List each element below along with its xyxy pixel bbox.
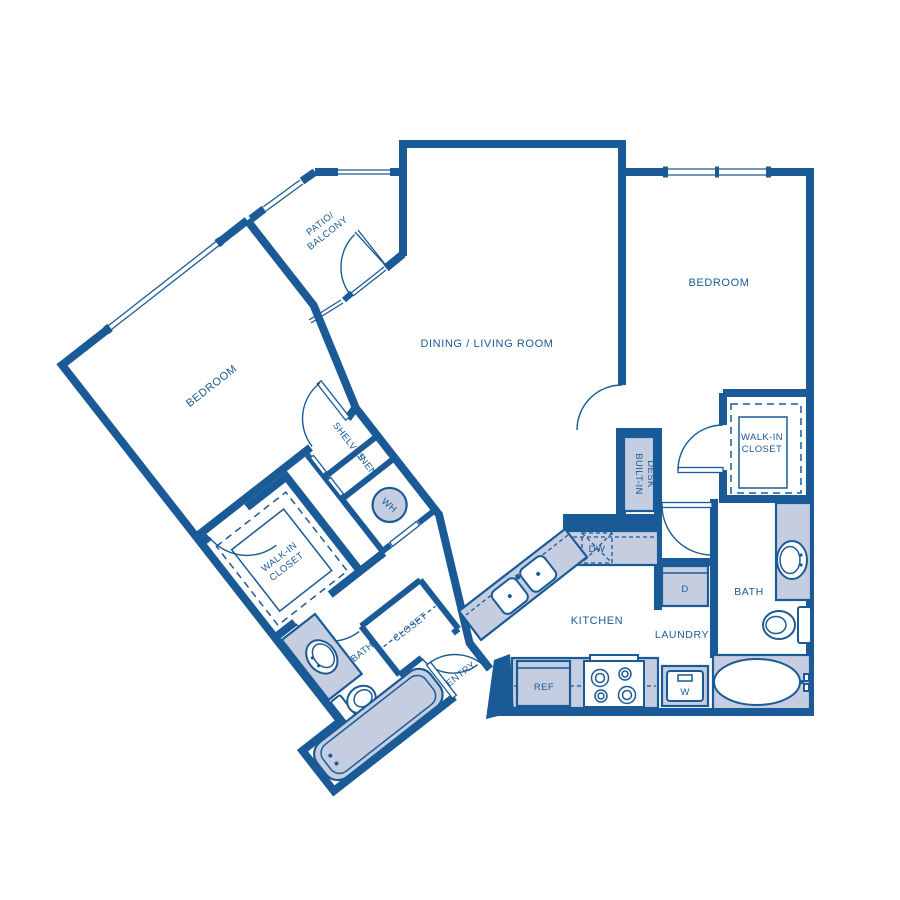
refrigerator-icon: REF	[517, 661, 570, 706]
kitchen-label: KITCHEN	[571, 615, 623, 627]
bathtub-right-icon	[713, 655, 810, 710]
walk-in-right-door	[678, 468, 723, 473]
closet-label: CLOSET	[391, 611, 430, 645]
left-wing: WALK-IN CLOSET SHELVES LINEN WH BATH	[21, 217, 556, 791]
patio-label: PATIO/ BALCONY	[298, 205, 350, 253]
bedroom-right-label: BEDROOM	[688, 277, 749, 289]
walk-in-right-label: WALK-IN	[741, 432, 783, 443]
bedroom-left-window	[103, 237, 224, 334]
wh-door	[390, 521, 420, 546]
washer-icon: W	[662, 666, 708, 706]
walk-in-closet-right: WALK-IN CLOSET	[678, 393, 810, 503]
patio-top-window	[338, 170, 390, 174]
walk-in-right-door-arc	[678, 425, 723, 470]
laundry: D W LAUNDRY	[655, 499, 714, 706]
toilet-right-icon	[763, 607, 811, 643]
washer-label: W	[680, 687, 689, 698]
built-in-desk-label2: DESK	[645, 460, 656, 488]
stove-icon	[584, 655, 644, 707]
dryer-label: D	[681, 584, 688, 595]
dishwasher-label: DW	[589, 544, 606, 555]
bedroom-right-door-arc	[577, 385, 622, 430]
patio-door	[341, 230, 388, 295]
bedroom-right-window	[663, 167, 771, 178]
kitchen: DW REF KITCHEN	[459, 514, 658, 719]
patio-balcony: PATIO/ BALCONY	[251, 170, 404, 323]
bath-right-door	[662, 503, 712, 508]
kitchen-counter-angled	[459, 529, 587, 640]
patio-left-window	[263, 180, 303, 211]
walk-in-right-label2: CLOSET	[742, 444, 782, 455]
floor-plan: WALK-IN CLOSET SHELVES LINEN WH BATH	[0, 0, 900, 900]
dining-living-room: DINING / LIVING ROOM	[399, 140, 626, 350]
built-in-desk-label: BUILT-IN	[633, 453, 644, 495]
entry-label: ENTRY	[444, 659, 478, 689]
dryer-icon: D	[662, 566, 708, 606]
bath-right-label: BATH	[734, 586, 764, 598]
linen-label: LINEN	[352, 448, 379, 478]
laundry-label: LAUNDRY	[655, 629, 709, 641]
refrigerator-label: REF	[534, 682, 554, 693]
kitchen-half-wall	[563, 514, 658, 531]
bedroom-left-label: BEDROOM	[184, 363, 239, 410]
bath-left: BATH	[242, 578, 449, 786]
dining-living-label: DINING / LIVING ROOM	[420, 338, 553, 350]
sink-right-icon	[777, 541, 807, 579]
bath-right-door-arc	[662, 505, 712, 555]
wing-outer-walls	[24, 220, 557, 791]
floor-plan-canvas: WALK-IN CLOSET SHELVES LINEN WH BATH	[0, 0, 900, 900]
